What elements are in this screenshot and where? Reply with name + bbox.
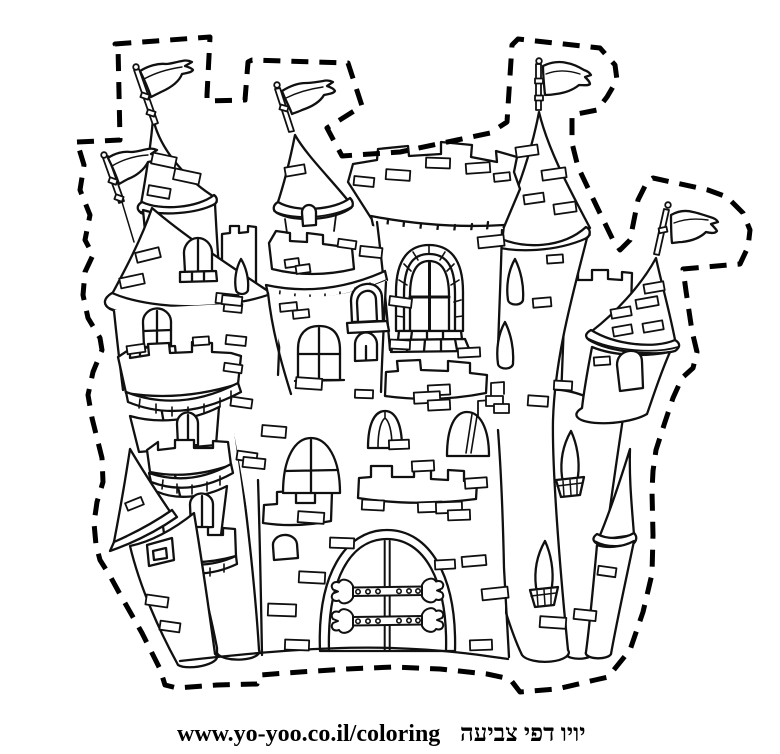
svg-text:יויו דפי צביעה: יויו דפי צביעה bbox=[460, 721, 586, 747]
svg-text:www.yo-yoo.co.il/coloring: www.yo-yoo.co.il/coloring bbox=[177, 721, 440, 747]
